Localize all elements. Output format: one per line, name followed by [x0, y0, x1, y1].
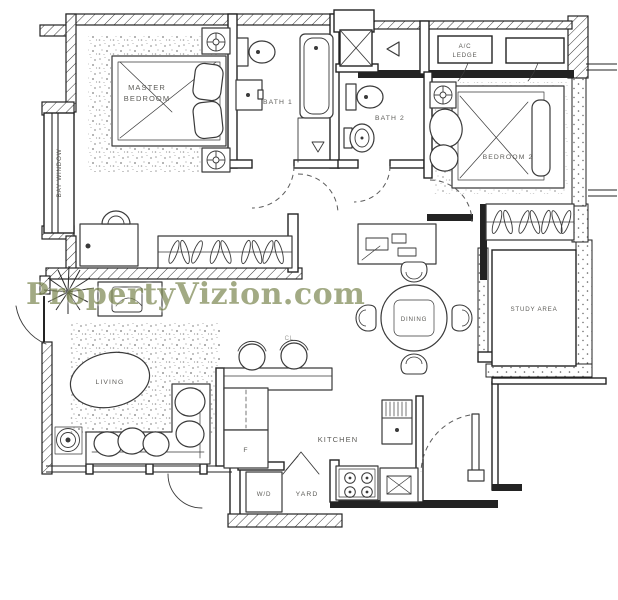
- label-living: LIVING: [96, 379, 125, 386]
- hall-desk-icon: [358, 224, 436, 264]
- ac-unit-box: [506, 38, 564, 63]
- label-wd: W/D: [257, 491, 271, 498]
- label-dining: DINING: [401, 316, 427, 323]
- toilet-tank-icon: [237, 38, 248, 66]
- main-door-leaf: [472, 414, 479, 472]
- dining-chair-icon: [356, 305, 376, 331]
- wardrobe-icon: [486, 204, 574, 240]
- label-bath2: BATH 2: [375, 115, 405, 122]
- floor-plan-page: MASTER BEDROOM BATH 1 BATH 2 A/C LEDGE B…: [0, 0, 618, 600]
- dining-chair-icon: [401, 262, 427, 282]
- tall-cabinet-icon: [382, 400, 412, 444]
- pillow-icon: [532, 100, 550, 176]
- pillow-icon: [192, 62, 224, 101]
- label-kitchen: KITCHEN: [318, 435, 359, 444]
- label-ac-ledge-line1: A/C: [459, 43, 472, 50]
- label-yard: YARD: [296, 491, 319, 498]
- toilet-tank-icon: [346, 84, 356, 110]
- door-hinge-block: [468, 470, 484, 481]
- tv-console-icon: [98, 282, 162, 316]
- label-study-area: STUDY AREA: [510, 306, 557, 313]
- dining-chair-icon: [401, 354, 427, 374]
- floor-plan: MASTER BEDROOM BATH 1 BATH 2 A/C LEDGE B…: [0, 0, 618, 600]
- label-bay-window: BAY WINDOW: [56, 149, 63, 198]
- label-ac-ledge-line2: LEDGE: [453, 52, 478, 59]
- dining-chair-icon: [452, 305, 472, 331]
- bar-counter-icon: [224, 368, 332, 390]
- wardrobe-icon: [158, 236, 292, 268]
- toilet-icon: [357, 86, 383, 108]
- label-bath1: BATH 1: [263, 99, 293, 106]
- stove-icon: [336, 466, 378, 500]
- label-fridge: F: [243, 447, 248, 454]
- label-master-bedroom-line2: BEDROOM: [124, 94, 170, 103]
- pillow-icon: [192, 101, 224, 140]
- label-master-bedroom-line1: MASTER: [128, 83, 166, 92]
- toilet-icon: [249, 41, 275, 63]
- label-bedroom2: BEDROOM 2: [483, 154, 534, 161]
- label-cl: CL: [285, 336, 294, 342]
- sink-icon: [380, 468, 418, 502]
